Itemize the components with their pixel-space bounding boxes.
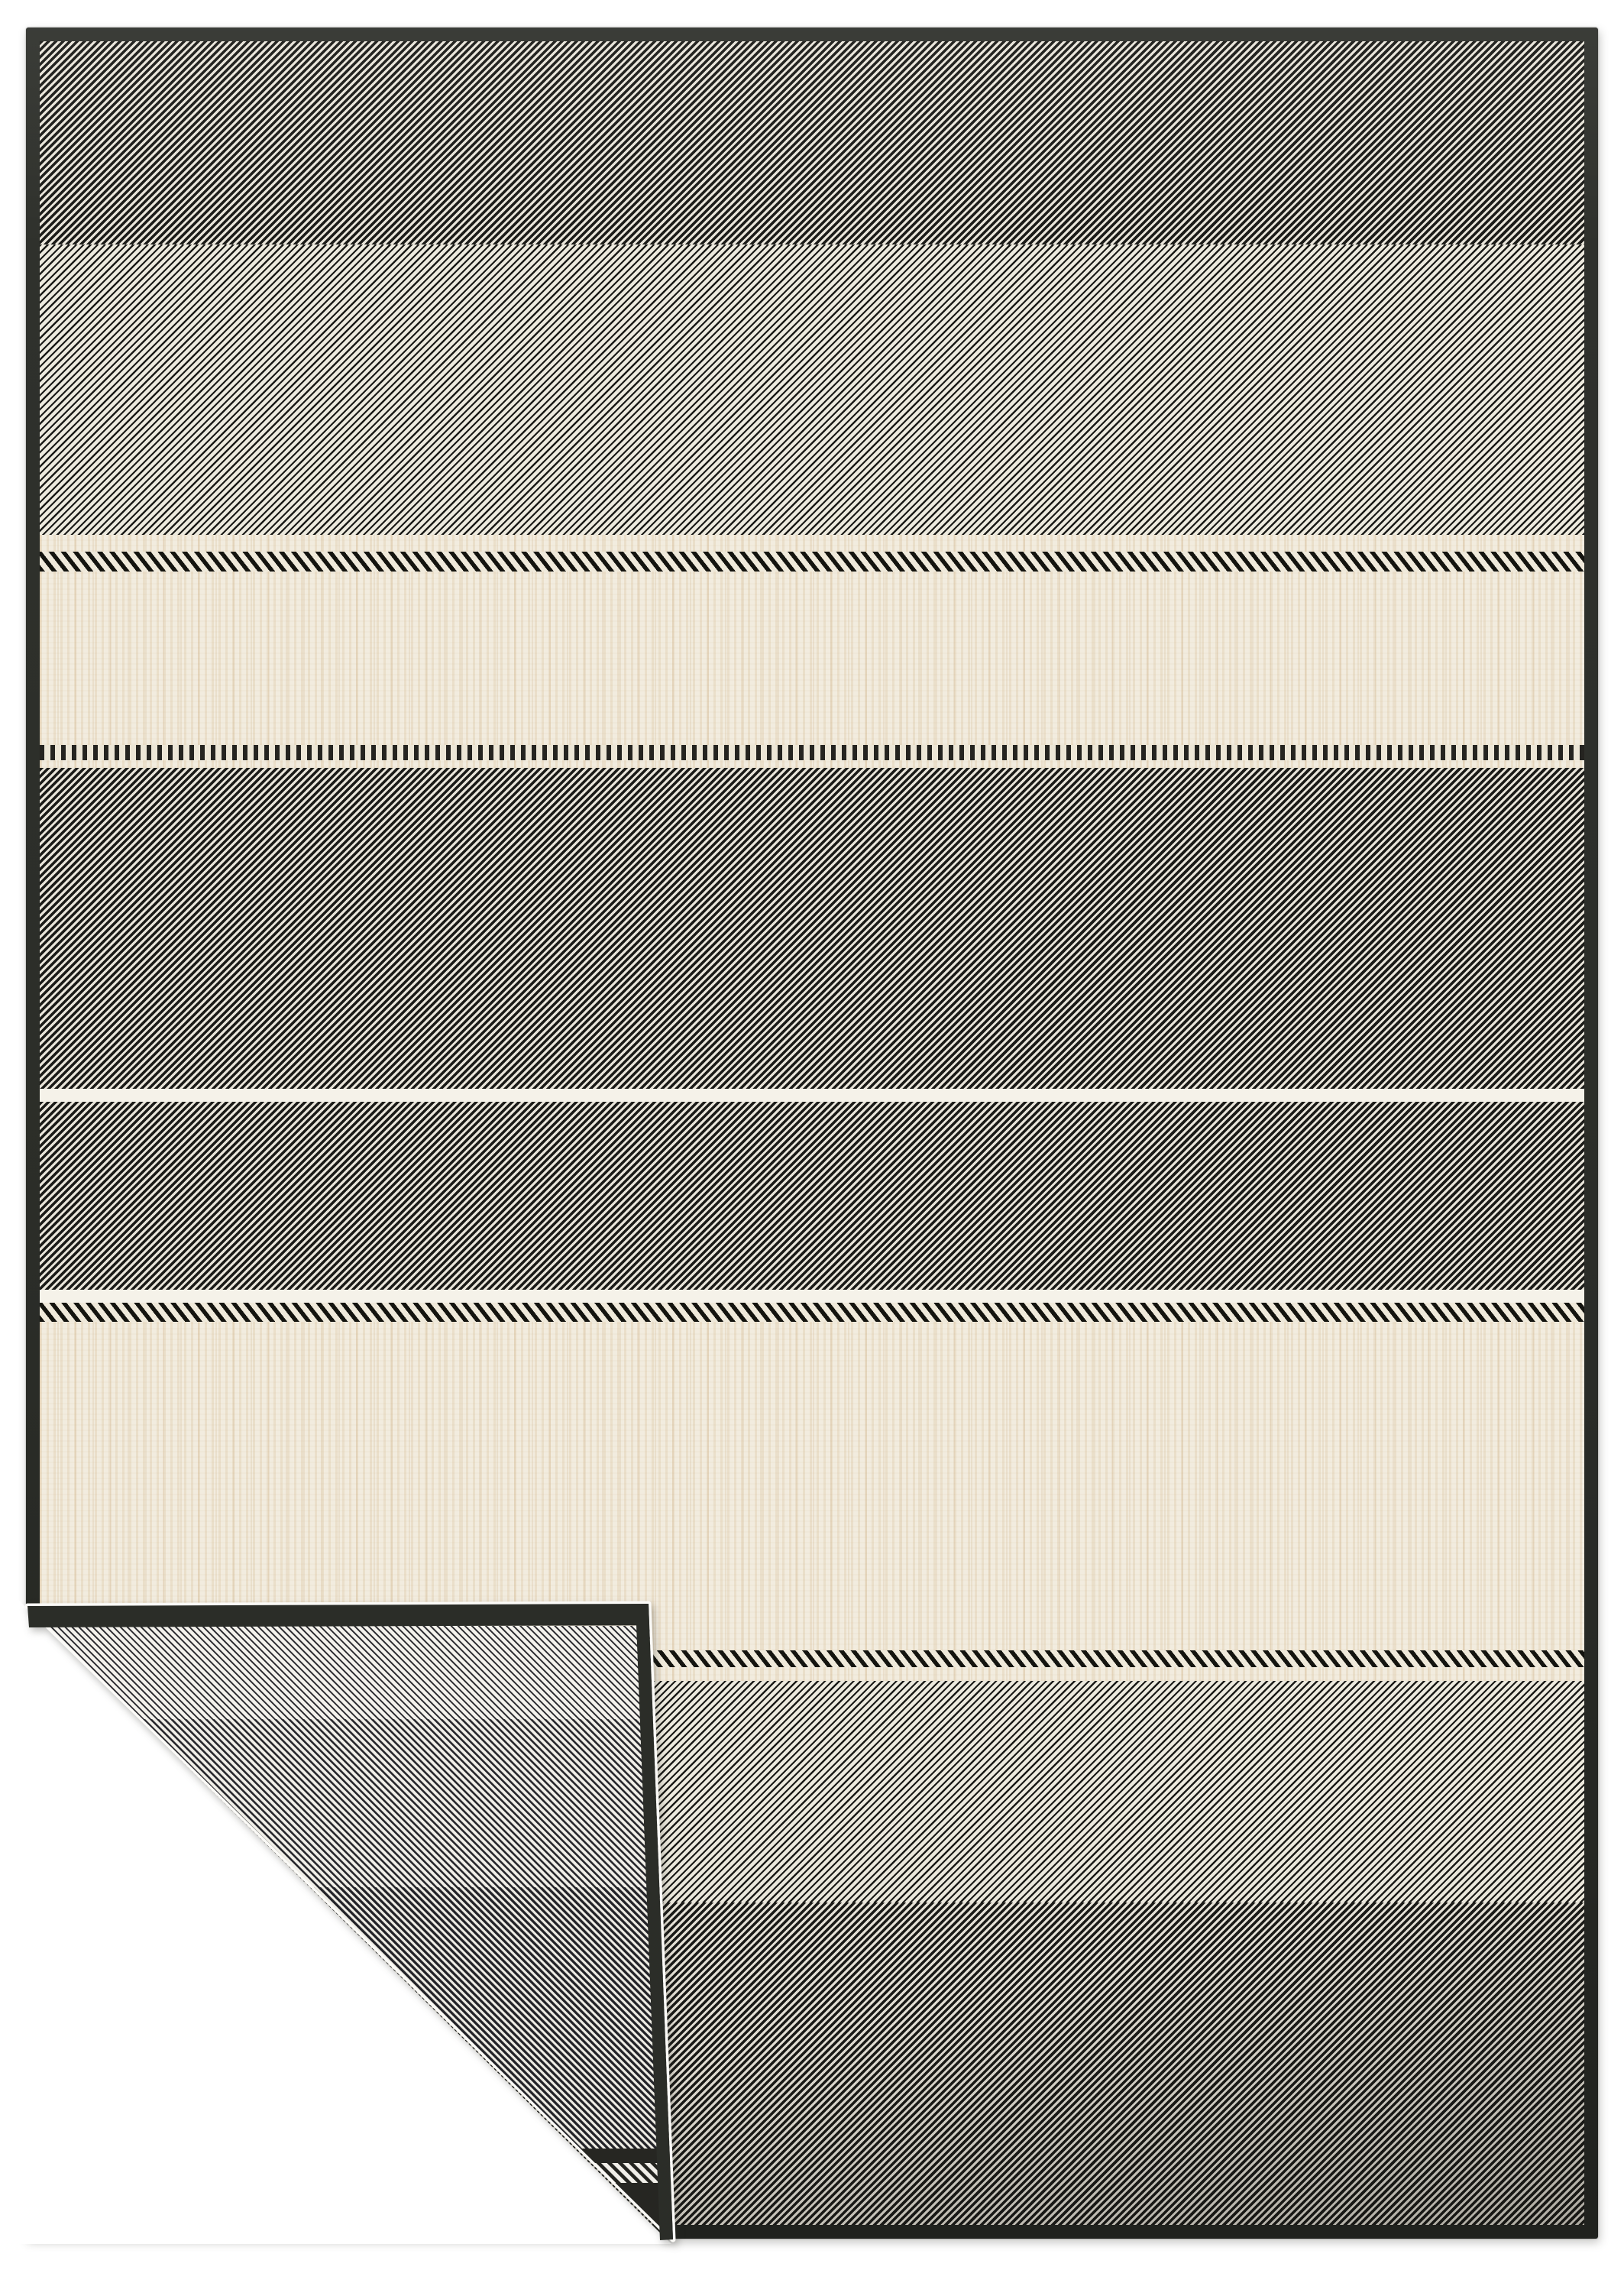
stripe-upper-gray — [40, 244, 1584, 535]
stripe-cream-gap-1 — [40, 535, 1584, 552]
flap-reverse-weave — [0, 1626, 726, 2239]
back-band-back-tip — [0, 2183, 726, 2239]
stripe-charcoal-1 — [40, 768, 1584, 1089]
stripe-charcoal-2 — [40, 1102, 1584, 1290]
stripe-cream-band-1 — [40, 572, 1584, 745]
stripe-cream-line-2 — [40, 1290, 1584, 1303]
back-band-back-dark-line — [0, 2149, 726, 2163]
stripe-rope-1 — [40, 552, 1584, 572]
flap-top-binding — [27, 1604, 649, 1627]
folded-corner-flap — [0, 1566, 726, 2283]
product-photo-stage — [0, 0, 1624, 2283]
back-band-back-deep — [0, 1887, 726, 2149]
stripe-rope-2 — [40, 1303, 1584, 1322]
stripe-cream-line-1 — [40, 1089, 1584, 1102]
back-band-back-dash — [0, 2163, 726, 2183]
stripe-top-charcoal — [40, 41, 1584, 244]
stripe-cream-gap-2 — [40, 760, 1584, 768]
back-band-back-mid — [0, 1719, 726, 1887]
back-band-back-light — [0, 1626, 726, 1719]
stripe-dotted-stripe — [40, 745, 1584, 760]
